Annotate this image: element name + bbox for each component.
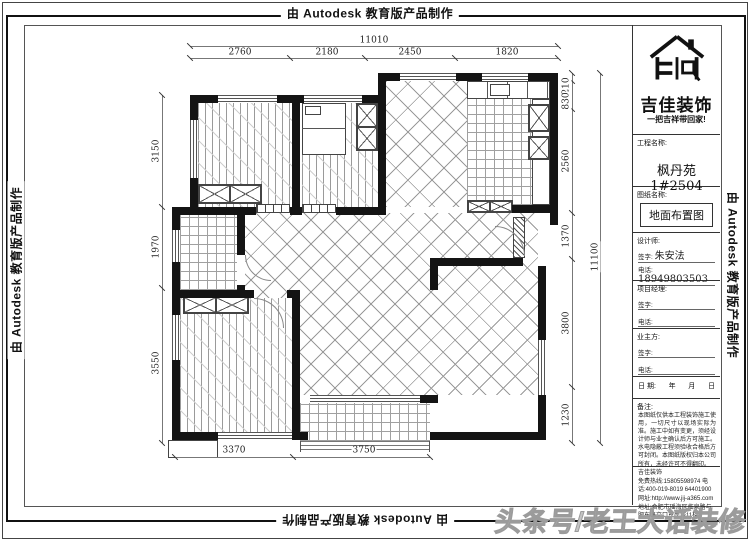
project-name-section: 工程名称: 枫丹苑1#2504 (633, 135, 720, 187)
dim-left-2: 1970 (153, 235, 162, 260)
wardrobe-top-left (198, 184, 262, 204)
wall-segment (430, 258, 438, 290)
dim-line-top-segments (190, 58, 558, 59)
title-block-logo-section: 吉佳装饰 一把吉祥带回家! (633, 25, 720, 135)
sign-label: 签字: (638, 350, 653, 357)
floor-balcony-tile (300, 403, 430, 441)
sheet-name-value: 地面布置图 (640, 203, 713, 227)
dim-right-4: 1370 (563, 224, 572, 249)
wall-segment (190, 95, 198, 120)
pm-sign-row: 签字: (638, 299, 715, 310)
company-name: 吉佳装饰 (633, 91, 720, 116)
window-symbol (172, 230, 180, 262)
owner-phone-row: 电话: (638, 364, 715, 375)
designer-section: 设计师: 签字: 朱安法 电话: 18949803503 (633, 233, 720, 281)
window-symbol (190, 120, 198, 178)
dim-right-2: 830 (563, 91, 572, 110)
date-label: 日 期: (638, 381, 656, 391)
wall-segment (530, 205, 558, 213)
dim-bottom-1: 3370 (222, 447, 247, 456)
wall-segment (430, 432, 546, 440)
wall-segment (420, 395, 438, 403)
autodesk-education-stamp-top: 由 Autodesk 教育版产品制作 (281, 5, 459, 22)
autodesk-education-stamp-bottom: 由 Autodesk 教育版产品制作 (276, 512, 454, 529)
company-contact-name: 吉佳装饰 (638, 470, 662, 476)
dim-right-3: 2560 (563, 149, 572, 174)
date-section: 日 期: 年 月 日 (633, 377, 720, 399)
company-logo-house-icon (649, 33, 705, 85)
phone-label: 电话: (638, 319, 653, 326)
wall-segment (438, 258, 523, 266)
date-month: 月 (688, 381, 695, 391)
balcony-sliding-door-symbol (310, 395, 420, 403)
designer-label: 设计师: (637, 236, 660, 246)
company-slogan: 一把吉祥带回家! (633, 114, 720, 125)
dim-line-left (162, 95, 163, 443)
pm-phone-row: 电话: (638, 316, 715, 327)
autodesk-education-stamp-right: 由 Autodesk 教育版产品制作 (725, 186, 742, 364)
dim-top-1: 2760 (228, 49, 253, 58)
wall-segment (172, 290, 254, 298)
dim-left-3: 3550 (153, 351, 162, 376)
wardrobe-bottom-left (183, 296, 249, 314)
window-symbol (304, 95, 362, 103)
wall-segment (538, 266, 546, 340)
wardrobe-top-middle (356, 103, 378, 151)
date-row: 日 期: 年 月 日 (638, 381, 715, 391)
sign-label: 签字: (638, 302, 653, 309)
project-name-label: 工程名称: (637, 138, 667, 148)
wall-segment (172, 298, 180, 315)
wall-segment (292, 95, 300, 213)
wall-segment (237, 213, 245, 255)
wall-segment (292, 432, 308, 440)
floor-corridor-tile (386, 81, 467, 207)
notes-section: 备注: 本图纸仅供本工程装饰施工使用，一切尺寸以现场实际为准。施工中如有变更，须… (633, 399, 720, 467)
window-symbol (218, 432, 292, 440)
wall-segment (172, 215, 180, 230)
sheet-name-label: 图纸名称: (637, 190, 667, 200)
window-symbol (482, 73, 528, 81)
wall-segment (378, 103, 386, 213)
floor-bathroom-tile (180, 215, 237, 290)
dim-left-1: 3150 (153, 139, 162, 164)
sliding-door-track-1 (256, 204, 290, 213)
watermark-text: 头条号/老王大话装修 (493, 500, 748, 539)
ac-platform (168, 440, 218, 458)
phone-label: 电话: (638, 267, 653, 274)
sliding-door-track-2 (302, 204, 336, 213)
kitchen-appliance-1 (528, 104, 550, 132)
pm-label: 项目经理: (637, 284, 667, 294)
window-symbol (218, 95, 277, 103)
kitchen-sink (490, 84, 510, 96)
window-symbol (400, 73, 456, 81)
kitchen-appliance-2 (528, 136, 550, 160)
entry-cabinet (467, 200, 513, 213)
sign-label: 签字: (638, 254, 653, 261)
bed-blanket-line (302, 128, 346, 129)
designer-name: 朱安法 (655, 251, 685, 262)
window-symbol (538, 340, 546, 395)
company-contact-section: 吉佳装饰 免费热线:15805598974 电 话:400-019-8019 6… (633, 467, 720, 504)
wall-segment (172, 360, 180, 432)
dim-right-5: 3800 (563, 311, 572, 336)
date-day: 日 (708, 381, 715, 391)
date-year: 年 (669, 381, 676, 391)
notes-label: 备注: (637, 402, 653, 412)
dim-top-4: 1820 (495, 49, 520, 58)
dim-top-overall: 11010 (359, 37, 390, 46)
autodesk-education-stamp-left: 由 Autodesk 教育版产品制作 (8, 181, 25, 359)
notes-text: 本图纸仅供本工程装饰施工使用，一切尺寸以现场实际为准。施工中如有变更，须经设计师… (638, 412, 716, 469)
window-symbol (172, 315, 180, 360)
wall-segment (383, 73, 400, 81)
wall-segment (456, 73, 482, 81)
dim-bottom-2: 3750 (352, 447, 377, 456)
designer-sign-row: 签字: 朱安法 (638, 247, 715, 263)
pm-section: 项目经理: 签字: 电话: (633, 281, 720, 329)
dim-line-bottom (175, 457, 430, 458)
dim-top-2: 2180 (315, 49, 340, 58)
dim-right-6: 1230 (563, 403, 572, 428)
dim-top-3: 2450 (398, 49, 423, 58)
wall-segment (538, 395, 546, 440)
wall-segment (172, 432, 218, 440)
owner-label: 业主方: (637, 332, 660, 342)
wall-segment (550, 73, 558, 225)
wall-segment (512, 205, 530, 213)
owner-section: 业主方: 签字: 电话: (633, 329, 720, 377)
company-hotline: 免费热线:15805598974 (638, 479, 700, 485)
dim-right-overall: 11100 (592, 242, 601, 273)
sheet-name-section: 图纸名称: 地面布置图 (633, 187, 720, 233)
wall-segment (292, 290, 300, 440)
owner-sign-row: 签字: (638, 347, 715, 358)
phone-label: 电话: (638, 367, 653, 374)
drawing-sheet: 由 Autodesk 教育版产品制作 由 Autodesk 教育版产品制作 由 … (0, 0, 750, 541)
title-block: 吉佳装饰 一把吉祥带回家! 工程名称: 枫丹苑1#2504 图纸名称: 地面布置… (632, 25, 720, 505)
bed-pillow (305, 106, 321, 115)
